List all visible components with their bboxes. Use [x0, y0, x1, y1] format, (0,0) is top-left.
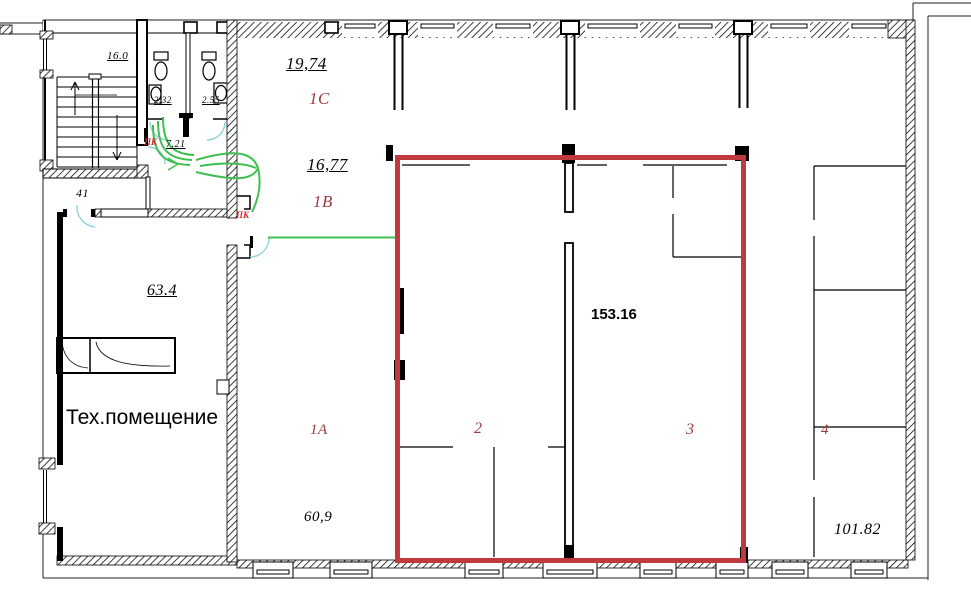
room2-partition — [400, 447, 565, 557]
area-label-corridor: 7.21 — [166, 140, 186, 150]
ramp-detail — [57, 338, 175, 373]
pk-label-upper: ПК — [144, 138, 157, 147]
room-label-4: 4 — [821, 423, 829, 438]
toilet-block — [148, 33, 228, 137]
floor-plan-drawing — [0, 0, 971, 594]
wc-right-door-arc — [207, 122, 225, 140]
area-label-right: 101.82 — [834, 522, 881, 538]
room3-closet — [673, 166, 741, 257]
area-label-1c: 19,74 — [286, 55, 327, 72]
room-label-1a: 1A — [310, 423, 328, 438]
area-label-1a: 60,9 — [304, 510, 332, 525]
window-sills — [345, 24, 886, 28]
area-label-1b: 16,77 — [307, 156, 348, 173]
area-label-wc-left: 2.32 — [154, 96, 172, 105]
wall-niche — [217, 380, 229, 394]
route-lines — [153, 117, 396, 238]
area-label-tech: 63.4 — [147, 283, 177, 299]
stairs — [57, 74, 137, 168]
stairs-up-arrow — [71, 82, 79, 115]
floor-plan: 19,74 1C 16,77 1B 1A 60,9 2 3 4 101.82 1… — [0, 0, 971, 594]
pk-label-lower: ПК — [236, 211, 249, 220]
area-label-wc-right: 2.55 — [202, 96, 220, 105]
partitions — [400, 165, 906, 557]
stairs-dim-label: 16.0 — [107, 51, 128, 62]
wall-stub-top-left — [0, 25, 12, 34]
door-pier — [183, 113, 189, 137]
room-label-3: 3 — [686, 422, 695, 438]
area-label-lobby: 41 — [76, 187, 89, 199]
room-label-1b: 1B — [313, 193, 333, 210]
top-wall — [43, 21, 908, 110]
tech-room-label: Тех.помещение — [66, 407, 218, 428]
room-label-1c: 1C — [309, 90, 330, 107]
tech-room-walls — [39, 209, 227, 561]
highlight-area-label: 153.16 — [591, 307, 637, 322]
room-label-2: 2 — [474, 421, 483, 437]
wc-fixtures — [154, 52, 216, 80]
center-wall — [565, 163, 573, 557]
